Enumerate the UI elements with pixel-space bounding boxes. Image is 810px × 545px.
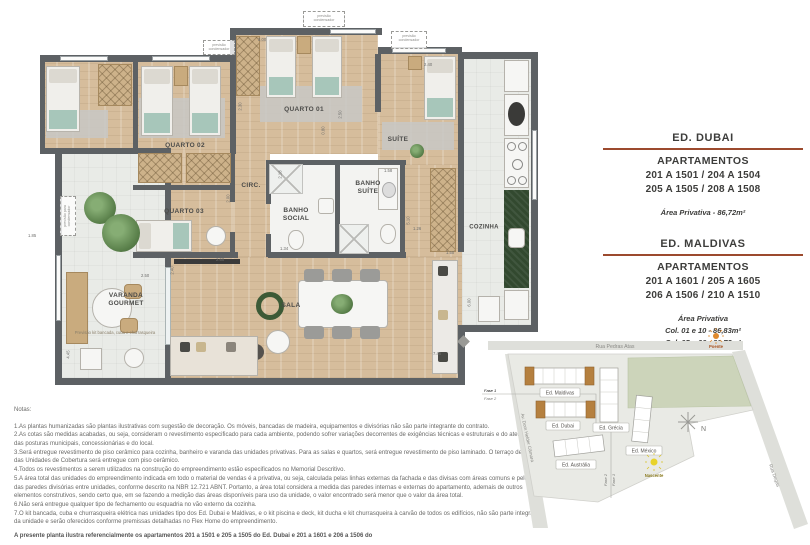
kitchen-sink-bowl	[508, 102, 525, 126]
dubai-subtitle: APARTAMENTOS	[603, 155, 803, 167]
wardrobe	[236, 36, 260, 96]
room-label-quarto03: QUARTO 03	[164, 208, 204, 216]
chair	[304, 326, 324, 339]
circ-floor	[233, 152, 270, 257]
window	[56, 255, 61, 321]
wall	[375, 54, 381, 112]
room-label-circ: CIRC.	[241, 182, 260, 190]
maldivas-area-title: Área Privativa	[603, 314, 803, 323]
burner	[507, 176, 516, 185]
sun-west-label: Poente	[709, 344, 724, 349]
wall	[133, 58, 138, 154]
maldivas-units-line: 206 A 1506 / 210 A 1510	[603, 290, 803, 301]
plant	[410, 144, 424, 158]
wall	[133, 185, 235, 190]
bed	[46, 66, 80, 132]
kitchen-opening	[532, 130, 537, 200]
phase2-label-vertical: Fase 2	[603, 473, 608, 486]
wall	[55, 378, 465, 385]
building-info-panel: ED. DUBAI APARTAMENTOS 201 A 1501 / 204 …	[603, 132, 803, 347]
wall	[268, 252, 406, 258]
toilet	[380, 224, 396, 244]
dubai-units-line: 201 A 1501 / 204 A 1504	[603, 170, 803, 181]
chaise-pillow	[226, 342, 236, 352]
plant	[102, 214, 140, 252]
room-label-sala: SALA	[282, 302, 301, 310]
armchair	[266, 330, 290, 354]
kit-provision-note: Previsão kit bancada, cuba e churrasquei…	[62, 330, 168, 335]
wall	[458, 58, 464, 252]
wall	[458, 52, 538, 59]
floorplan-page: { "plan": { "rooms": { "quarto01": "QUAR…	[0, 0, 810, 540]
condenser-provision-box: previsão para condensador	[60, 196, 76, 236]
site-map: Ed. Maldivas Ed. Dubai Ed. Grécia Ed. Mé…	[448, 328, 810, 545]
bed	[312, 36, 342, 98]
chaise-pillow	[196, 342, 206, 352]
road-right	[732, 350, 808, 529]
dimension-label: 0.80	[321, 126, 326, 134]
compass-n-label: N	[701, 426, 706, 433]
bed	[189, 66, 221, 136]
wall	[400, 165, 405, 257]
window	[60, 56, 108, 61]
wardrobe	[138, 153, 182, 183]
shower	[339, 224, 369, 254]
dimension-label: 1.85	[28, 233, 36, 238]
phase2-label: Fase 2	[484, 396, 497, 401]
chair	[332, 326, 352, 339]
dimension-label: 4.45	[66, 350, 71, 358]
dimension-label: 3.00	[258, 37, 266, 42]
dimension-label: 2.40	[424, 62, 432, 67]
maldivas-title: ED. MALDIVAS	[603, 238, 803, 250]
wardrobe	[186, 153, 231, 183]
toilet	[288, 230, 304, 250]
suite-closet	[430, 168, 456, 252]
round-sink	[124, 348, 144, 368]
room-label-banho-suite: BANHO SUÍTE	[355, 180, 380, 196]
bed	[136, 220, 192, 252]
room-label-quarto01: QUARTO 01	[284, 106, 324, 114]
condenser-provision-box: previsão condensador	[303, 11, 345, 27]
condenser-provision-box: previsão condensador	[203, 40, 235, 55]
sink-bowl	[382, 182, 396, 198]
chair	[304, 269, 324, 282]
sofa-pillow	[438, 310, 448, 320]
dubai-units-line: 205 A 1505 / 208 A 1508	[603, 184, 803, 195]
nightstand	[408, 56, 422, 70]
kitchen-cabinet	[504, 60, 529, 92]
site-map-svg: Ed. Maldivas Ed. Dubai Ed. Grécia Ed. Mé…	[448, 328, 810, 540]
dimension-label: 2.50	[141, 273, 149, 278]
chaise-pillow	[180, 342, 190, 352]
dimension-label: 1.34	[280, 246, 288, 251]
burner	[507, 142, 516, 151]
dimension-label: 2.50	[338, 110, 343, 118]
chair	[360, 269, 380, 282]
sun-east-label: Nascente	[645, 473, 664, 478]
chair	[332, 269, 352, 282]
sofa-pillow	[438, 266, 448, 276]
phase1-label-vertical: Fase 1	[611, 474, 616, 486]
svg-text:Ed. Grécia: Ed. Grécia	[599, 426, 623, 432]
shower	[269, 164, 303, 194]
tv-panel	[174, 259, 240, 264]
dubai-title: ED. DUBAI	[603, 132, 803, 144]
room-label-cozinha: COZINHA	[469, 224, 498, 232]
room-label-quarto02: QUARTO 02	[165, 142, 205, 150]
dimension-label: 1.26	[413, 226, 421, 231]
maldivas-subtitle: APARTAMENTOS	[603, 261, 803, 273]
dimension-label: 1.50	[446, 250, 454, 255]
nightstand	[174, 66, 188, 86]
dimension-label: 1.58	[384, 168, 392, 173]
counter-sink	[508, 228, 525, 248]
washer	[80, 348, 102, 370]
dimension-label: 2.40	[170, 266, 175, 274]
svg-text:Ed. Maldivas: Ed. Maldivas	[546, 391, 575, 397]
condenser-provision-box: previsão condensador	[391, 31, 427, 49]
burner	[518, 176, 527, 185]
svg-text:Ed. Dubai: Ed. Dubai	[552, 424, 574, 430]
wardrobe	[98, 64, 132, 106]
phase1-label: Fase 1	[484, 388, 496, 393]
window	[152, 56, 210, 61]
bed	[141, 66, 173, 136]
compass-icon	[678, 412, 698, 432]
washer	[504, 290, 529, 320]
svg-text:Ed. Austrália: Ed. Austrália	[562, 463, 590, 469]
burner	[512, 159, 523, 170]
decor-plant-ring	[256, 292, 284, 320]
burner	[518, 142, 527, 151]
room-label-banho-social: BANHO SOCIAL	[283, 207, 309, 223]
dubai-rule	[603, 148, 803, 150]
dimension-label: 5.10	[406, 216, 411, 224]
room-label-suite: SUÍTE	[388, 136, 409, 144]
dimension-label: 2.18	[278, 170, 283, 178]
wall	[40, 55, 45, 154]
nightstand	[297, 36, 311, 54]
sink	[318, 198, 334, 214]
dimension-label: 2.60	[216, 257, 224, 262]
maldivas-units-line: 201 A 1601 / 205 A 1605	[603, 276, 803, 287]
chair	[206, 226, 226, 246]
window	[330, 29, 376, 34]
room-label-varanda: VARANDA GOURMET	[108, 292, 143, 308]
dimension-label: 6.00	[467, 298, 472, 306]
laundry-tank	[478, 296, 500, 322]
dimension-label: 2.30	[238, 102, 243, 110]
street-label-top: Rua Pedras Atas	[596, 344, 635, 350]
dimension-label: 7.45	[433, 351, 441, 356]
dubai-area: Área Privativa - 86,72m²	[603, 208, 803, 217]
dimension-label: 2.00	[226, 194, 231, 202]
table-centerpiece-plant	[331, 294, 353, 314]
chair	[360, 326, 380, 339]
svg-text:Ed. México: Ed. México	[632, 449, 657, 455]
bed	[266, 36, 296, 98]
maldivas-rule	[603, 254, 803, 256]
